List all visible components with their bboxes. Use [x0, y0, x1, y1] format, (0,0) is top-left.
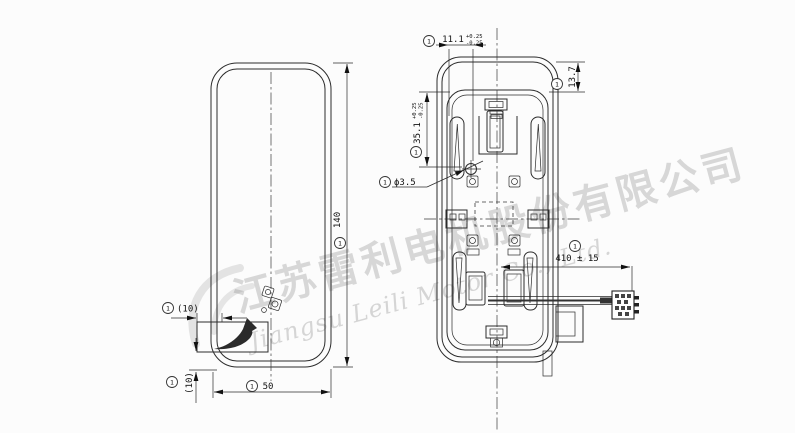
balloon: 1 [167, 377, 178, 388]
dim-text: (10) [185, 372, 195, 394]
dim-tol-minus: -0.25 [466, 41, 483, 47]
dim-text: (10) [177, 305, 199, 315]
dim-text: 50 [263, 382, 274, 392]
balloon: 1 [163, 303, 174, 314]
dim-text: 35.1 [413, 122, 423, 144]
balloon: 1 [570, 241, 581, 252]
screw-boss-upper-left [467, 176, 478, 187]
balloon: 1 [247, 381, 258, 392]
svg-text:1: 1 [555, 81, 559, 89]
dim-width-50: 1 50 [213, 369, 331, 398]
guide-pin-upper-left [454, 124, 460, 171]
svg-text:1: 1 [414, 149, 418, 157]
dim-text: 140 [333, 212, 343, 228]
dim-hole-offset-35-1: 35.1 +0.25 -0.25 1 [411, 92, 463, 167]
svg-text:1: 1 [427, 38, 431, 46]
dim-top-11-1: 1 11.1 +0.25 -0.25 [424, 34, 487, 161]
dim-tol-plus: +0.25 [412, 102, 418, 119]
dim-text: 11.1 [442, 35, 464, 45]
svg-text:1: 1 [250, 383, 254, 391]
watermark-company-name-cn: 江苏雷利电机股份有限公司 [229, 141, 751, 322]
dim-tol-minus: -0.25 [419, 102, 425, 119]
drawing-canvas: 江苏雷利电机股份有限公司 Jiangsu Leili Motor Co., Lt… [0, 0, 795, 433]
balloon: 1 [411, 147, 422, 158]
dim-tab-offset-10: 1 (10) [163, 303, 248, 323]
dim-depth-13-7: 1 13.7 [549, 62, 585, 92]
guide-pin-upper-right [535, 124, 541, 171]
screw-boss-upper-right [509, 176, 520, 187]
dim-text: 410 ± 15 [555, 254, 598, 264]
dim-text-group: 35.1 +0.25 -0.25 [412, 102, 425, 143]
wire-harness [488, 297, 612, 305]
balloon: 1 [335, 238, 346, 249]
harness-connector [612, 291, 639, 319]
balloon: 1 [552, 79, 563, 90]
dim-tol-plus: +0.25 [466, 34, 483, 40]
svg-text:1: 1 [170, 379, 174, 387]
dim-text: ϕ3.5 [394, 178, 416, 188]
side-protrusion [556, 306, 583, 342]
spring-cylinder-inner [490, 116, 500, 148]
connector-pins [634, 296, 639, 314]
dim-text: 13.7 [568, 66, 578, 88]
svg-text:1: 1 [573, 243, 577, 251]
svg-text:1: 1 [166, 305, 170, 313]
top-latch-screw [485, 99, 507, 119]
hole-3_5 [462, 160, 481, 178]
svg-text:1: 1 [383, 179, 387, 187]
spring-cylinder [487, 111, 503, 152]
bottom-latch-screw [486, 326, 507, 347]
dim-tab-height-10: 1 (10) [167, 338, 218, 403]
side-protrusion-inner [556, 312, 575, 336]
balloon: 1 [424, 36, 435, 47]
wire-sleeve [600, 298, 612, 304]
balloon: 1 [380, 177, 391, 188]
svg-text:1: 1 [338, 240, 342, 248]
